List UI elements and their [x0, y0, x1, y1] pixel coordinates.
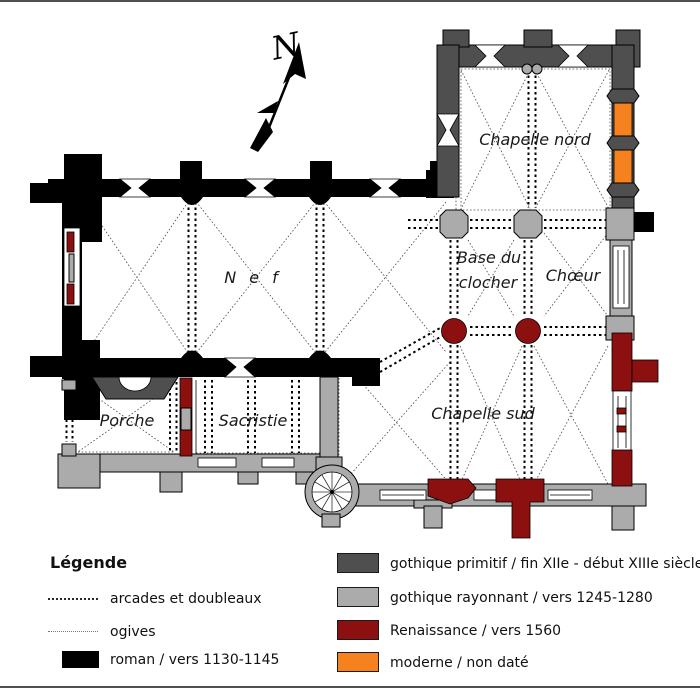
label-base-du-clocher-2: clocher	[459, 273, 519, 292]
church-plan-document: N	[0, 0, 700, 700]
legend-label-arcades: arcades et doubleaux	[110, 591, 262, 607]
church-floor-plan: N	[0, 0, 700, 545]
porch-portal	[92, 377, 178, 399]
label-choeur: Chœur	[546, 266, 602, 285]
legend-title: Légende	[50, 553, 127, 572]
legend-label-roman: roman / vers 1130-1145	[110, 652, 279, 668]
legend-label-moderne: moderne / non daté	[390, 655, 529, 671]
spiral-staircase-icon	[305, 465, 359, 527]
tower-pier-nw	[440, 210, 468, 238]
legend-swatch-gothique-primitif	[337, 553, 379, 573]
legend-swatch-gothique-rayonnant	[337, 587, 379, 607]
label-chapelle-nord: Chapelle nord	[479, 130, 591, 149]
legend-label-ogives: ogives	[110, 624, 156, 640]
stair-turret-wall	[320, 377, 338, 459]
legend-swatch-ogives	[48, 631, 98, 632]
tower-pier-se	[516, 319, 541, 344]
legend-label-renaissance: Renaissance / vers 1560	[390, 623, 561, 639]
label-chapelle-sud: Chapelle sud	[431, 404, 535, 423]
legend-swatch-moderne	[337, 652, 379, 672]
label-base-du-clocher-1: Base du	[457, 248, 521, 267]
tower-pier-ne	[514, 210, 542, 238]
gothique-primitif-walls	[92, 30, 640, 399]
north-arrow-icon: N	[250, 24, 306, 152]
room-labels: Chapelle nord N e f Base du clocher Chœu…	[100, 130, 602, 430]
legend-label-gothique-rayonnant: gothique rayonnant / vers 1245-1280	[390, 590, 653, 606]
bottom-border	[0, 686, 700, 688]
legend-swatch-renaissance	[337, 620, 379, 640]
label-porche: Porche	[100, 411, 155, 430]
label-sacristie: Sacristie	[219, 411, 288, 430]
tower-pier-sw	[442, 319, 467, 344]
porch-sacristy-divider	[180, 378, 196, 456]
legend-label-gothique-primitif: gothique primitif / fin XIIe - début XII…	[390, 556, 700, 572]
label-nef: N e f	[224, 268, 282, 287]
legend-swatch-roman	[62, 651, 99, 668]
legend-swatch-arcades	[48, 598, 98, 600]
